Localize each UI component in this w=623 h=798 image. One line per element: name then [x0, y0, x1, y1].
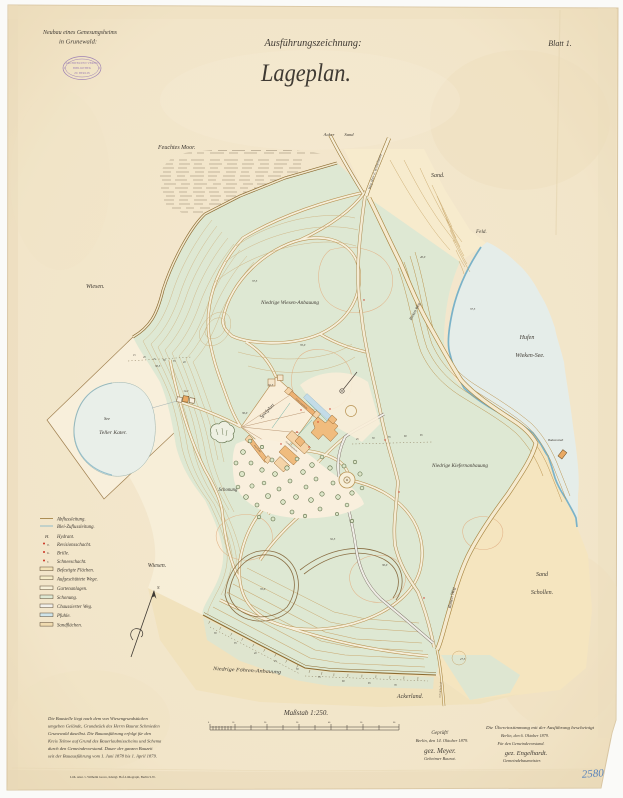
svg-text:Blatt 1.: Blatt 1. [548, 39, 572, 48]
svg-text:Revisionsschacht.: Revisionsschacht. [56, 543, 91, 548]
svg-text:ZU BERLIN: ZU BERLIN [74, 71, 90, 75]
svg-text:gez. Meyer.: gez. Meyer. [424, 747, 456, 755]
svg-text:Blei-Zuflussleitung.: Blei-Zuflussleitung. [57, 525, 95, 530]
svg-text:Hufen: Hufen [519, 334, 535, 341]
svg-text:c.: c. [47, 560, 50, 564]
svg-text:Geprüft!: Geprüft! [431, 731, 449, 736]
svg-text:Lageplan.: Lageplan. [260, 60, 351, 87]
svg-text:Niedrige Kiefernanbauung: Niedrige Kiefernanbauung [431, 462, 488, 469]
svg-text:BIBLIOTHEK: BIBLIOTHEK [73, 66, 92, 70]
svg-text:Wiesen.: Wiesen. [148, 563, 167, 569]
svg-text:Wieken-See.: Wieken-See. [515, 353, 544, 359]
svg-text:Niedrige Wiesen-Anbauung: Niedrige Wiesen-Anbauung [260, 300, 319, 306]
svg-text:Schonung: Schonung [219, 488, 239, 493]
svg-text:Pfuhle.: Pfuhle. [56, 614, 71, 619]
svg-text:ARCHITEKTEN·VEREIN: ARCHITEKTEN·VEREIN [66, 61, 100, 65]
svg-text:See: See [104, 416, 110, 421]
svg-text:Die Übereinstimmung mit der Au: Die Übereinstimmung mit der Ausführung b… [485, 725, 595, 730]
svg-text:durch den Gemeindevorstand. Da: durch den Gemeindevorstand. Dauer der ga… [48, 746, 153, 751]
svg-text:Schollen.: Schollen. [531, 590, 553, 596]
svg-text:Badeanstalt: Badeanstalt [548, 438, 563, 442]
svg-text:Für den Gemeindevorstand.: Für den Gemeindevorstand. [496, 741, 544, 746]
svg-text:Schonung.: Schonung. [57, 596, 77, 601]
svg-text:Feuchtes Moor.: Feuchtes Moor. [157, 145, 195, 151]
svg-text:gez. Engelhardt.: gez. Engelhardt. [505, 750, 548, 757]
svg-text:Schneeschacht.: Schneeschacht. [57, 560, 86, 565]
svg-text:Chaussierter Weg.: Chaussierter Weg. [57, 605, 92, 610]
svg-text:b.: b. [47, 551, 50, 555]
svg-text:Ausführungszeichnung:: Ausführungszeichnung: [264, 38, 362, 49]
svg-text:Neubau eines Genesungsheims: Neubau eines Genesungsheims [42, 29, 117, 36]
svg-text:Aufgeschüttete Wege.: Aufgeschüttete Wege. [56, 578, 98, 583]
svg-text:Teller Kater.: Teller Kater. [99, 430, 127, 436]
svg-text:N.: N. [156, 586, 160, 590]
svg-text:in Grunewald:: in Grunewald: [59, 39, 97, 46]
svg-text:Hydrant.: Hydrant. [56, 535, 74, 540]
svg-text:Feld.: Feld. [475, 229, 487, 235]
svg-text:Abflussleitung.: Abflussleitung. [56, 518, 86, 523]
svg-text:a.: a. [47, 543, 50, 547]
svg-text:Ackerland.: Ackerland. [396, 694, 423, 700]
svg-text:Brille.: Brille. [57, 552, 69, 557]
svg-text:Geheimer Baurat.: Geheimer Baurat. [424, 756, 456, 761]
svg-text:Sandflächen.: Sandflächen. [57, 624, 82, 629]
svg-text:Sand.: Sand. [431, 173, 445, 179]
svg-text:Maßstab 1:250.: Maßstab 1:250. [283, 709, 329, 717]
svg-text:Gartenanlagen.: Gartenanlagen. [57, 587, 87, 592]
svg-text:Sand: Sand [344, 132, 354, 137]
svg-text:Stall: Stall [184, 390, 189, 393]
svg-text:Die Baustelle liegt nach dem v: Die Baustelle liegt nach dem von Wieseng… [47, 716, 148, 721]
svg-text:seit der Bauausführung vom 1.: seit der Bauausführung vom 1. Juni 1878 … [48, 754, 157, 759]
svg-text:Gemeindebaumeister.: Gemeindebaumeister. [503, 758, 541, 763]
svg-text:Kreis Teltow auf Grund des Bau: Kreis Teltow auf Grund des Bauerlaubniss… [47, 739, 162, 744]
svg-text:Acker: Acker [323, 132, 335, 137]
svg-text:Wiesen.: Wiesen. [86, 284, 105, 290]
svg-text:Befestigte Flächen.: Befestigte Flächen. [57, 569, 94, 574]
svg-text:Grunewald daselbst. Die Bauaus: Grunewald daselbst. Die Bauausführung er… [48, 731, 152, 736]
svg-text:H.: H. [44, 534, 49, 539]
svg-text:Sand: Sand [536, 572, 549, 578]
svg-text:2580: 2580 [581, 767, 604, 781]
